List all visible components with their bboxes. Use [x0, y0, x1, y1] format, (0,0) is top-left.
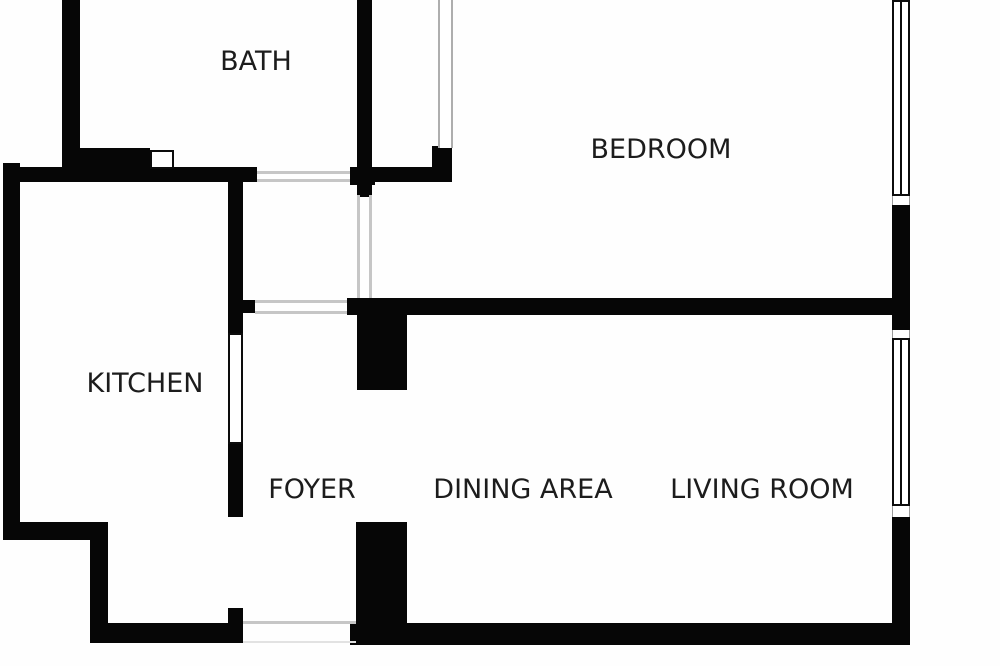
- kitchen-left-wall: [3, 163, 20, 540]
- kitchen-bottom-wall: [90, 623, 243, 643]
- kitchen-foyer-wall-upper: [228, 180, 243, 333]
- bath-passthrough-window: [150, 150, 174, 169]
- room-label-bedroom: BEDROOM: [591, 133, 732, 167]
- entry-door-opening-top: [243, 621, 356, 624]
- floorplan-canvas: BATH BEDROOM KITCHEN FOYER DINING AREA L…: [0, 0, 1000, 666]
- room-label-bath: BATH: [220, 45, 292, 79]
- right-wall-lower: [892, 517, 910, 645]
- bath-bottom-wall: [80, 148, 150, 182]
- room-label-kitchen: KITCHEN: [87, 367, 204, 401]
- bath-left-wall: [62, 0, 80, 182]
- hall-top-wall: [372, 167, 452, 182]
- kitchen-foyer-wall-mid: [228, 443, 243, 517]
- living-room-window: [892, 338, 910, 506]
- bedroom-window: [892, 0, 910, 196]
- kitchen-serving-window: [228, 333, 243, 444]
- bath-door-opening-top: [257, 171, 350, 174]
- hall-door-opening-top: [255, 300, 347, 303]
- room-label-dining-area: DINING AREA: [433, 473, 612, 507]
- hall-door-opening-left: [357, 195, 360, 298]
- bedroom-bottom-wall: [347, 298, 892, 315]
- foyer-column-upper: [357, 298, 407, 390]
- living-room-window-sill-top: [892, 330, 910, 338]
- hall-door-opening-right: [369, 195, 372, 298]
- living-room-window-sill-bottom: [892, 506, 910, 517]
- right-wall-upper: [892, 205, 910, 330]
- room-label-foyer: FOYER: [268, 473, 356, 507]
- entry-door-opening-bottom: [243, 641, 356, 643]
- bedroom-window-sill: [892, 196, 910, 205]
- hall-door-opening-bottom: [255, 311, 347, 314]
- hall-corner-wall: [432, 146, 452, 168]
- bath-door-opening-bottom: [257, 179, 350, 182]
- bottom-wall: [350, 623, 910, 645]
- bedroom-door-leaf: [438, 0, 453, 148]
- foyer-jamb-stub: [243, 300, 255, 313]
- room-label-living-room: LIVING ROOM: [670, 473, 854, 507]
